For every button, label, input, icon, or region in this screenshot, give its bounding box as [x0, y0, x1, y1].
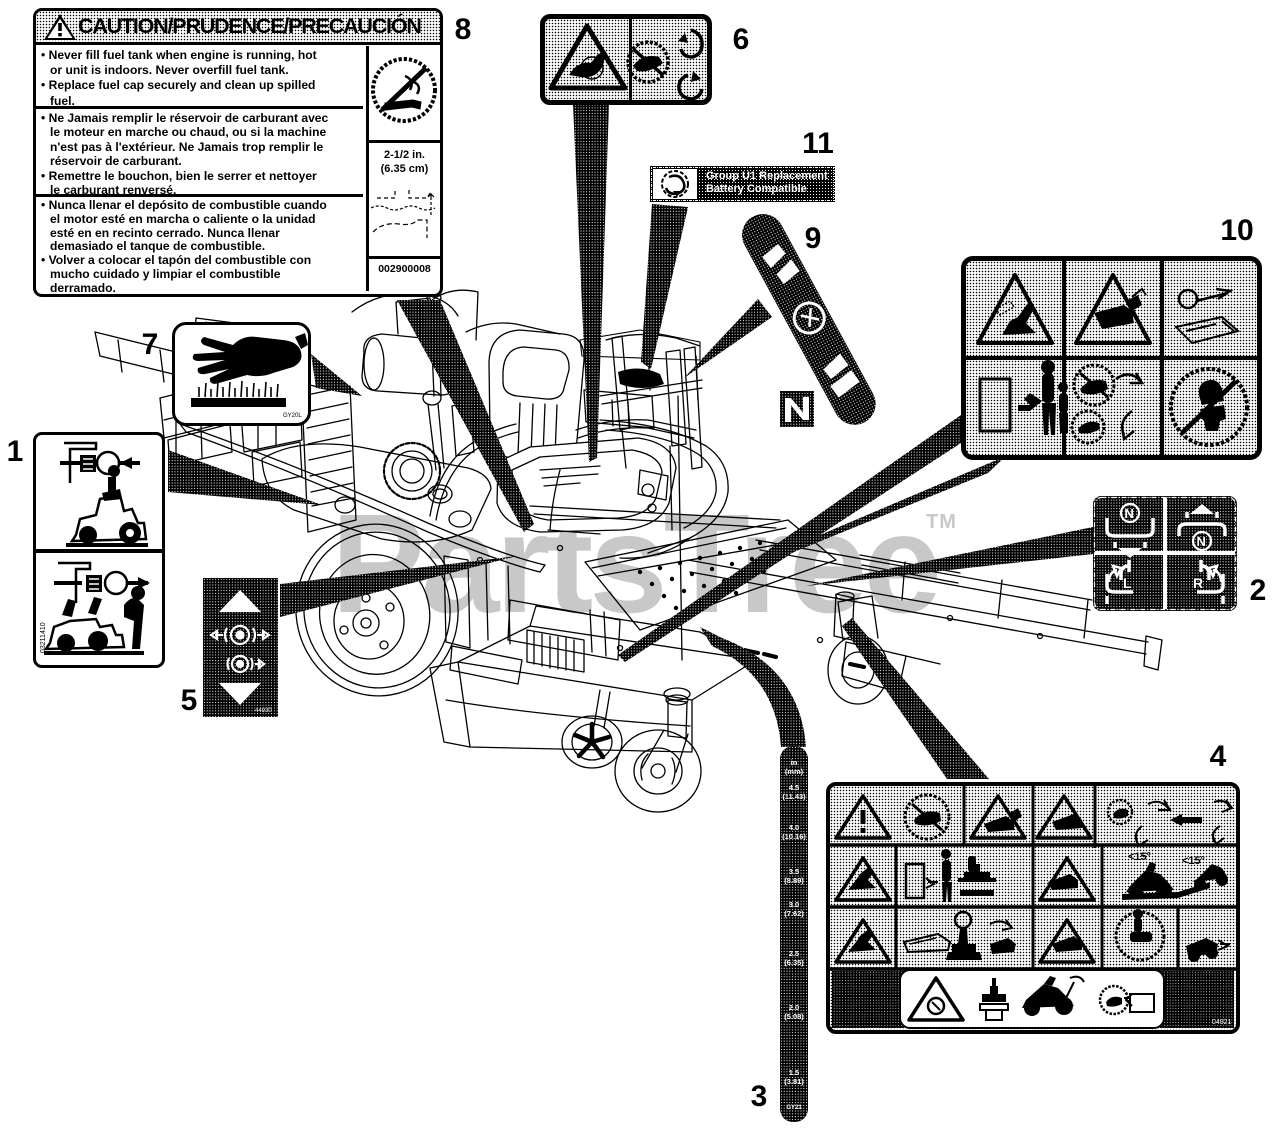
svg-text:44930: 44930 [255, 708, 272, 714]
svg-text:N: N [1125, 506, 1134, 521]
svg-text:L: L [1123, 575, 1132, 591]
svg-text:04921: 04921 [1212, 1019, 1232, 1026]
svg-text:<15°: <15° [1128, 851, 1151, 863]
svg-text:03211410: 03211410 [40, 622, 47, 653]
svg-text:N: N [1197, 534, 1206, 549]
svg-text:R: R [1193, 575, 1203, 591]
svg-text:GY20L: GY20L [283, 413, 302, 419]
svg-text:<15°: <15° [1182, 855, 1205, 867]
